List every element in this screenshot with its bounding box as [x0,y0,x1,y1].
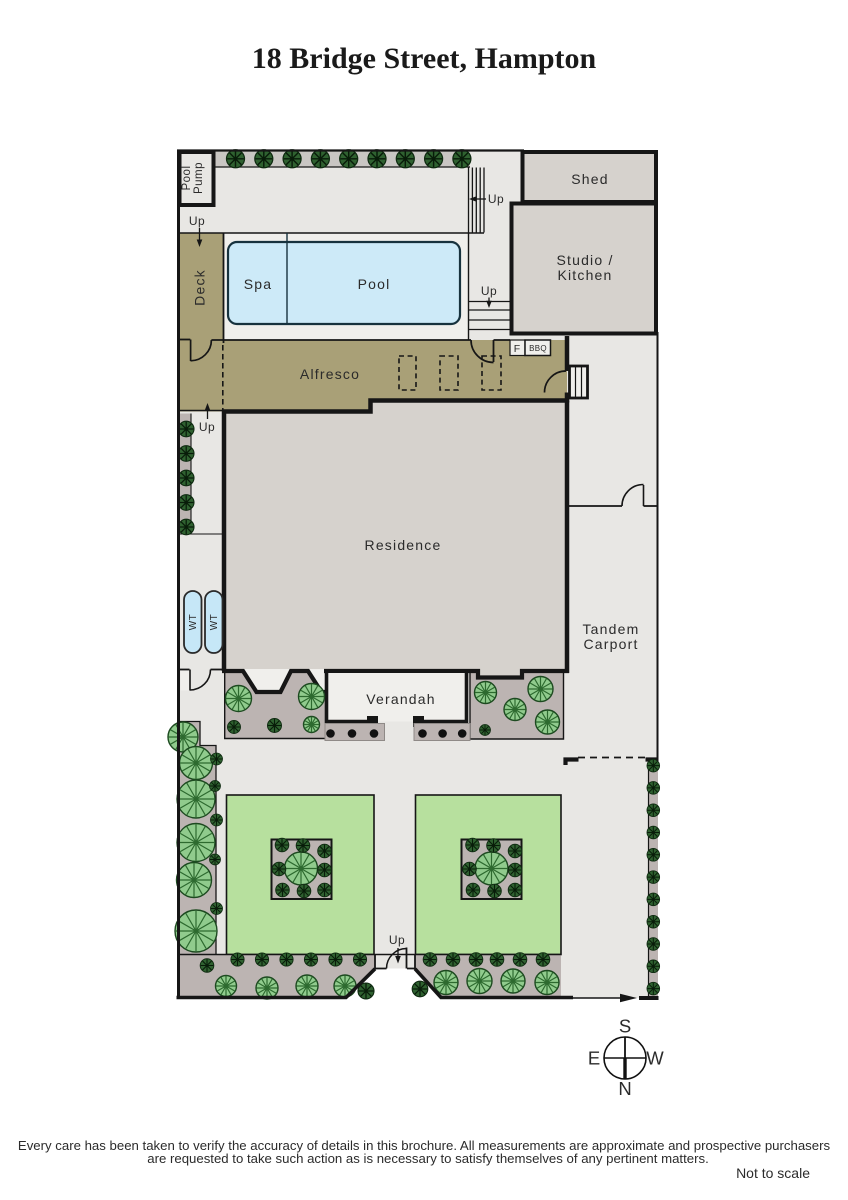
svg-text:Tandem: Tandem [582,621,639,637]
svg-text:Kitchen: Kitchen [557,267,612,283]
svg-text:S: S [619,1016,631,1037]
svg-text:Verandah: Verandah [366,691,436,707]
svg-text:N: N [618,1078,631,1099]
svg-text:WT: WT [188,614,199,631]
svg-text:Up: Up [389,933,405,947]
svg-text:Alfresco: Alfresco [300,366,360,382]
svg-text:Pool: Pool [358,276,391,292]
svg-text:Up: Up [488,192,504,206]
svg-text:E: E [588,1048,600,1069]
svg-text:Up: Up [189,214,205,228]
svg-text:Not to scale: Not to scale [736,1165,810,1181]
svg-text:18 Bridge Street, Hampton: 18 Bridge Street, Hampton [252,42,597,75]
svg-text:BBQ: BBQ [529,344,547,353]
svg-text:Deck: Deck [192,269,208,306]
svg-text:are requested to take such act: are requested to take such action as is … [147,1151,708,1166]
svg-text:Pump: Pump [193,162,205,194]
svg-text:Residence: Residence [365,537,442,553]
svg-text:F: F [514,343,520,355]
svg-text:Carport: Carport [583,636,638,652]
svg-text:Up: Up [481,284,497,298]
svg-text:W: W [646,1048,664,1069]
svg-text:Spa: Spa [244,276,273,292]
svg-text:WT: WT [209,614,220,631]
svg-text:Studio /: Studio / [556,252,613,268]
svg-text:Shed: Shed [571,171,609,187]
svg-text:Pool: Pool [181,165,193,190]
svg-text:Up: Up [199,420,215,434]
